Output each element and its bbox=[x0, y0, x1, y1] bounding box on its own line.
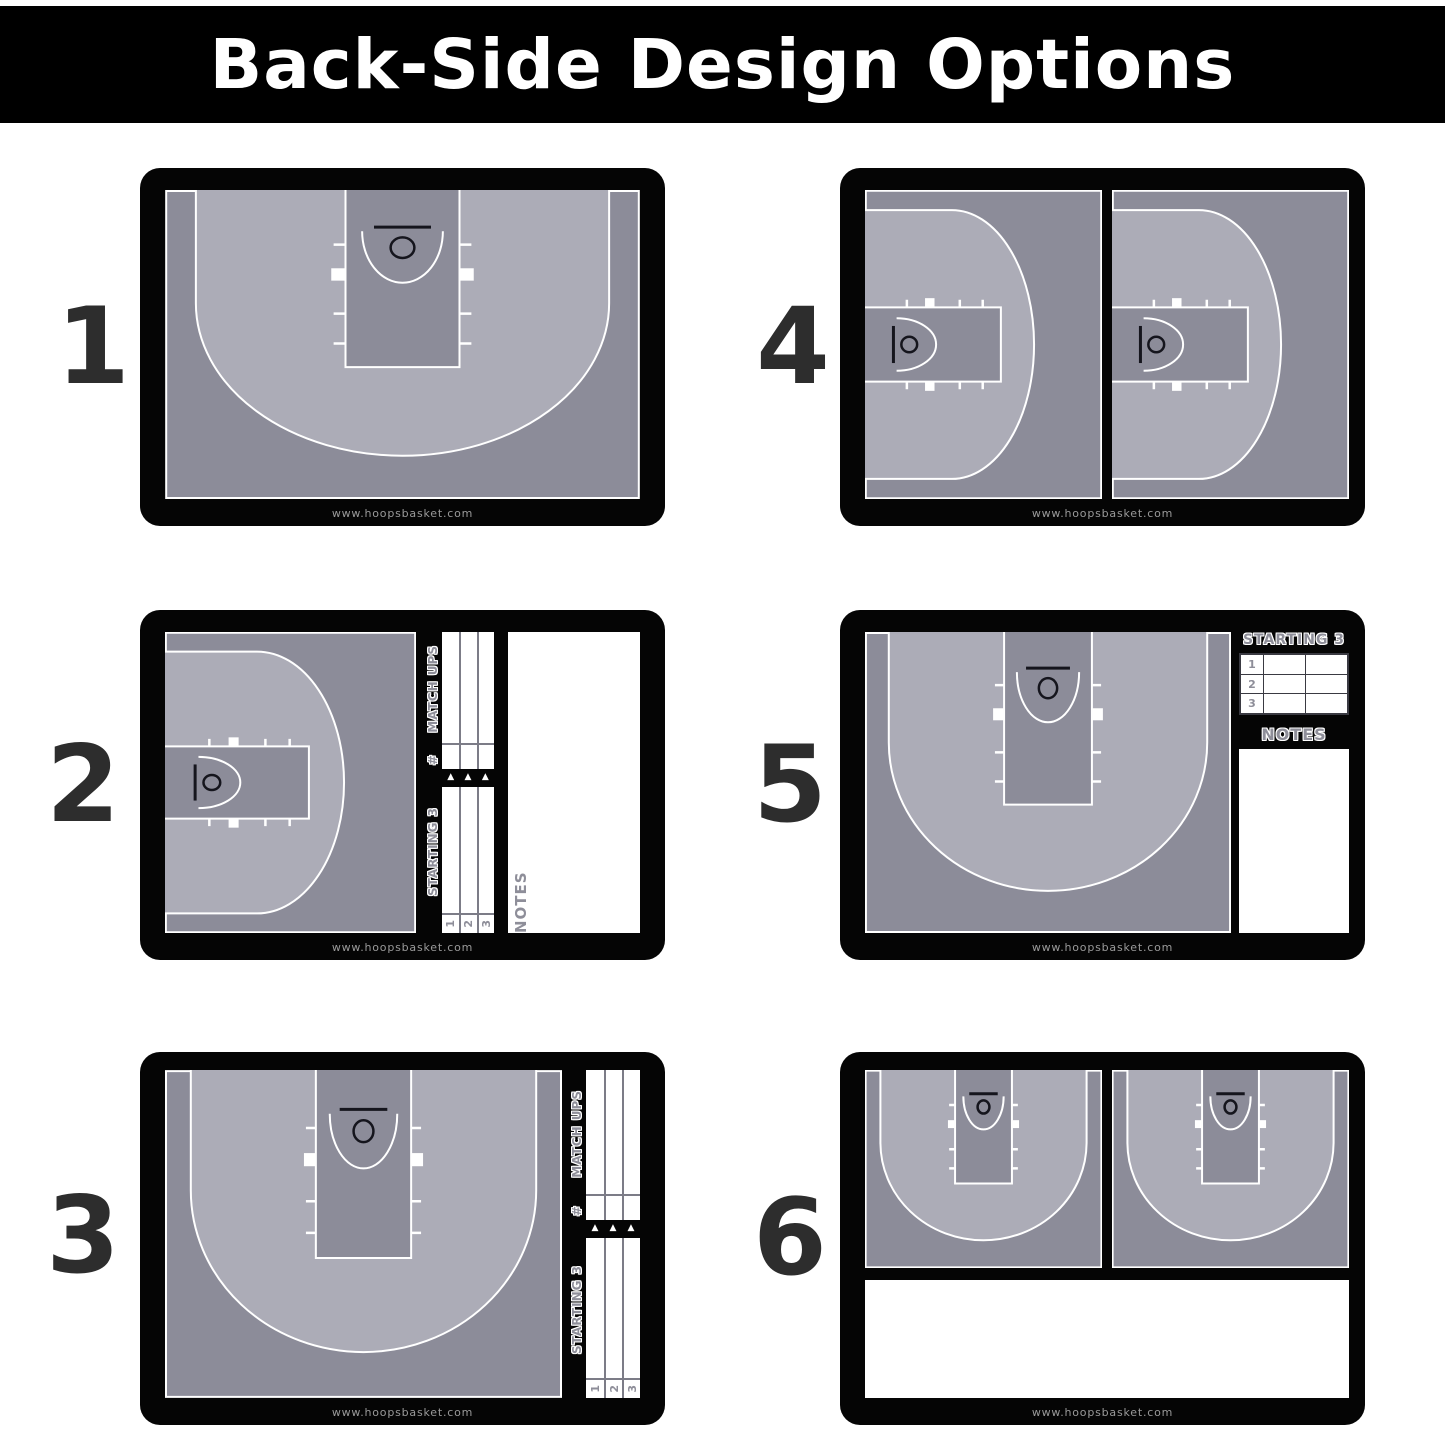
page-title: Back-Side Design Options bbox=[210, 25, 1236, 105]
halfcourt-left-graphic bbox=[865, 1070, 1102, 1268]
row-number: 3 bbox=[626, 1385, 639, 1393]
triangle-separator: ▲ ▲ ▲ bbox=[442, 769, 494, 787]
watermark: www.hoopsbasket.com bbox=[140, 1406, 665, 1419]
option-number-4: 4 bbox=[738, 291, 848, 403]
option-number-1: 1 bbox=[38, 291, 148, 403]
board-option-1: www.hoopsbasket.com bbox=[140, 168, 665, 526]
starting-3-table: 1 2 3 bbox=[1239, 653, 1349, 715]
board-option-5: STARTING 3 1 2 3 NOTES www.hoopsbasket.c… bbox=[840, 610, 1365, 960]
option-number-6: 6 bbox=[735, 1182, 845, 1294]
row-number: 1 bbox=[1248, 658, 1256, 671]
court-divider bbox=[1102, 190, 1112, 499]
row-number: 2 bbox=[462, 920, 475, 928]
watermark: www.hoopsbasket.com bbox=[840, 941, 1365, 954]
board-option-2: MATCH UPS # STARTING 3 ▲ ▲ ▲ 1 bbox=[140, 610, 665, 960]
row-number: 3 bbox=[1248, 697, 1256, 710]
halfcourt-graphic bbox=[165, 1070, 562, 1398]
starting-3-heading: STARTING 3 bbox=[1239, 632, 1349, 649]
board-option-4: www.hoopsbasket.com bbox=[840, 168, 1365, 526]
notes-area bbox=[1239, 749, 1349, 933]
match-ups-table bbox=[586, 1070, 640, 1220]
halfcourt-right-graphic bbox=[1112, 190, 1349, 499]
triangle-icon: ▲ bbox=[592, 1224, 599, 1233]
halfcourt-graphic bbox=[165, 190, 640, 499]
option-number-2: 2 bbox=[28, 729, 138, 841]
triangle-icon: ▲ bbox=[465, 773, 472, 782]
starting-3-label: STARTING 3 bbox=[570, 1265, 584, 1354]
notes-panel: NOTES bbox=[508, 632, 640, 933]
match-ups-label: MATCH UPS bbox=[426, 645, 440, 733]
halfcourt-graphic bbox=[865, 632, 1231, 933]
triangle-separator: ▲ ▲ ▲ bbox=[586, 1220, 640, 1238]
number-column-label: # bbox=[570, 1205, 584, 1216]
watermark: www.hoopsbasket.com bbox=[840, 507, 1365, 520]
row-number: 2 bbox=[608, 1385, 621, 1393]
notes-area bbox=[865, 1280, 1349, 1398]
side-panel: STARTING 3 1 2 3 NOTES bbox=[1239, 632, 1349, 933]
row-number: 1 bbox=[444, 920, 457, 928]
starting-3-table: 1 2 3 bbox=[586, 1238, 640, 1398]
board-option-6: www.hoopsbasket.com bbox=[840, 1052, 1365, 1425]
watermark: www.hoopsbasket.com bbox=[840, 1406, 1365, 1419]
board-option-3: MATCH UPS # STARTING 3 ▲ ▲ ▲ 1 bbox=[140, 1052, 665, 1425]
title-banner: Back-Side Design Options bbox=[0, 6, 1445, 123]
roster-label-rail: MATCH UPS # STARTING 3 bbox=[424, 632, 442, 933]
roster-label-rail: MATCH UPS # STARTING 3 bbox=[568, 1070, 586, 1398]
halfcourt-left-graphic bbox=[865, 190, 1102, 499]
match-ups-table bbox=[442, 632, 494, 769]
row-number: 3 bbox=[480, 920, 493, 928]
match-ups-label: MATCH UPS bbox=[570, 1090, 584, 1178]
option-number-5: 5 bbox=[735, 729, 845, 841]
starting-3-label: STARTING 3 bbox=[426, 807, 440, 896]
court-divider bbox=[1102, 1070, 1112, 1268]
watermark: www.hoopsbasket.com bbox=[140, 507, 665, 520]
triangle-icon: ▲ bbox=[628, 1224, 635, 1233]
triangle-icon: ▲ bbox=[610, 1224, 617, 1233]
notes-label: NOTES bbox=[512, 632, 530, 933]
number-column-label: # bbox=[426, 754, 440, 765]
row-number: 1 bbox=[589, 1385, 602, 1393]
halfcourt-right-graphic bbox=[1112, 1070, 1349, 1268]
halfcourt-graphic bbox=[165, 632, 416, 933]
notes-heading: NOTES bbox=[1239, 725, 1349, 744]
watermark: www.hoopsbasket.com bbox=[140, 941, 665, 954]
triangle-icon: ▲ bbox=[482, 773, 489, 782]
roster-table: ▲ ▲ ▲ 1 2 3 bbox=[442, 632, 494, 933]
triangle-icon: ▲ bbox=[447, 773, 454, 782]
option-number-3: 3 bbox=[28, 1180, 138, 1292]
starting-3-table: 1 2 3 bbox=[442, 787, 494, 933]
row-number: 2 bbox=[1248, 678, 1256, 691]
roster-table: ▲ ▲ ▲ 1 2 3 bbox=[586, 1070, 640, 1398]
